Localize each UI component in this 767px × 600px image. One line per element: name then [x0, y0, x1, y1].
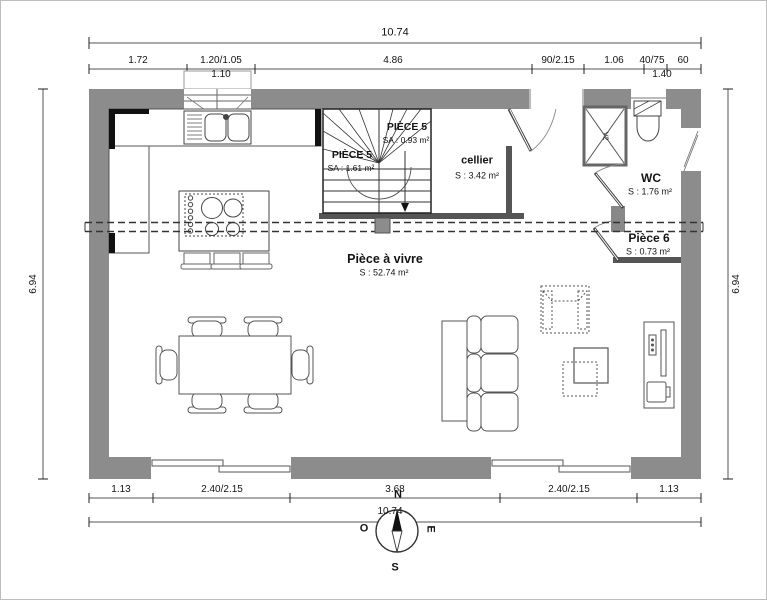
bar-stools: [181, 253, 272, 269]
counter-edge-black: [109, 109, 149, 114]
dim-left-total: 6.94: [29, 274, 39, 293]
dining-set: [156, 317, 313, 413]
coffee-tables: [563, 348, 608, 396]
dim-bottom-seg-4: 1.13: [659, 485, 678, 495]
dim-right-total: 6.94: [732, 274, 742, 293]
dim-top-seg-6: 60: [677, 56, 688, 66]
room-area-piece5-lower: SA : 1.61 m²: [328, 164, 375, 173]
dim-top-sub-door: 1.40: [652, 70, 671, 80]
wc-door-stub-wall: [611, 206, 625, 232]
piece6-bottom-wall: [613, 257, 681, 263]
room-name-piece6: Pièce 6: [628, 232, 669, 244]
room-area-wc: S : 1.76 m²: [628, 188, 672, 197]
dim-bottom-seg-0: 1.13: [111, 485, 130, 495]
dim-top-seg-1: 1.20/1.05: [200, 56, 242, 66]
room-area-piece-a-vivre: S : 52.74 m²: [359, 269, 408, 278]
sink-bowl: [228, 114, 249, 141]
chair-seat: [192, 321, 222, 338]
compass-west-label: O: [360, 524, 369, 535]
entrance-opening: [529, 89, 584, 109]
sink-bowl: [205, 114, 226, 141]
dim-top-seg-5: 40/75: [639, 56, 664, 66]
dim-bottom-seg-3: 2.40/2.15: [548, 485, 590, 495]
room-name-piece5-upper: PIÈCE 5: [387, 122, 427, 133]
shaft-label: V2: [602, 132, 609, 141]
counter-edge-black: [109, 109, 115, 149]
dim-top-total: 10.74: [381, 28, 409, 39]
room-area-piece5-upper: SA : 0.93 m²: [383, 136, 430, 145]
entrance-door-arc: [531, 109, 556, 151]
dim-bottom-seg-1: 2.40/2.15: [201, 485, 243, 495]
kitchen-island: [179, 191, 269, 251]
desk-chair: [647, 382, 666, 402]
sofa-seat-cushion: [481, 316, 518, 353]
compass-east-label: E: [425, 525, 436, 532]
desk: [644, 322, 674, 408]
counter-edge-black: [109, 233, 115, 253]
dim-top-sub-window: 1.10: [211, 70, 230, 80]
dining-table: [179, 336, 291, 394]
section-cut-line: [85, 218, 703, 233]
compass-south-label: S: [391, 563, 398, 574]
section-marker: [375, 218, 390, 233]
faucet: [224, 115, 229, 120]
dim-top-seg-0: 1.72: [128, 56, 147, 66]
compass-north-label: N: [394, 490, 402, 501]
room-name-piece-a-vivre: Pièce à vivre: [347, 253, 423, 266]
dim-bottom-total: 10.74: [377, 507, 402, 517]
sofa-back-cushion: [467, 316, 481, 353]
dim-top-seg-3: 90/2.15: [541, 56, 574, 66]
dim-top-seg-2: 4.86: [383, 56, 402, 66]
console-table: [442, 321, 467, 421]
stair-arrow-head: [401, 203, 409, 212]
floor-plan-drawing: 10.74 1.72 1.20/1.05 4.86 90/2.15 1.06 4…: [0, 0, 767, 600]
monitor: [661, 330, 666, 376]
kitchen-sink: [184, 111, 251, 144]
room-name-wc: WC: [641, 172, 661, 184]
cellier-right-wall: [506, 146, 512, 219]
toilet: [634, 101, 661, 141]
room-name-cellier: cellier: [461, 156, 493, 167]
room-area-cellier: S : 3.42 m²: [455, 172, 499, 181]
dim-top-seg-4: 1.06: [604, 56, 623, 66]
toilet-bowl: [637, 116, 659, 141]
stair-cellier-bottom-wall: [319, 213, 524, 219]
counter-edge-black: [315, 109, 321, 146]
armchair: [541, 286, 589, 333]
room-name-piece5-lower: PIÈCE 5: [332, 150, 372, 161]
stair-treads: [323, 169, 431, 202]
sofa: [442, 316, 518, 431]
room-area-piece6: S : 0.73 m²: [626, 248, 670, 257]
